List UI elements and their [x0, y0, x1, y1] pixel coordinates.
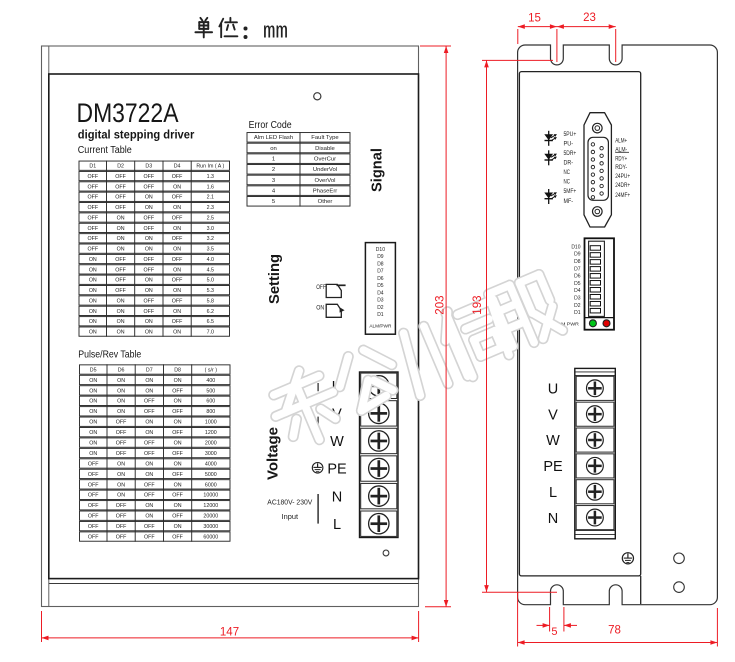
svg-text:OFF: OFF — [144, 493, 155, 499]
svg-text:OFF: OFF — [172, 451, 183, 457]
svg-text:OFF: OFF — [172, 174, 183, 180]
svg-text:OFF: OFF — [115, 195, 126, 201]
svg-text:D8: D8 — [377, 261, 384, 267]
svg-text:D4: D4 — [377, 290, 384, 296]
svg-text:W: W — [546, 433, 560, 449]
svg-text:2000: 2000 — [205, 441, 217, 447]
svg-text:NC: NC — [564, 180, 571, 186]
svg-text:D2: D2 — [377, 305, 384, 311]
svg-text:D6: D6 — [118, 367, 125, 373]
svg-text:ON: ON — [117, 309, 125, 315]
svg-text:30000: 30000 — [203, 524, 218, 530]
svg-text:OFF: OFF — [172, 298, 183, 304]
svg-text:ON: ON — [173, 205, 181, 211]
svg-text:DM3722A: DM3722A — [77, 98, 179, 128]
svg-text:ON: ON — [174, 399, 182, 405]
svg-text:ON: ON — [174, 378, 182, 384]
svg-text:OFF: OFF — [172, 236, 183, 242]
svg-text:MF-: MF- — [564, 199, 574, 205]
svg-text:OFF: OFF — [144, 298, 155, 304]
svg-text:OFF: OFF — [116, 420, 127, 426]
svg-text:D8: D8 — [174, 367, 181, 373]
svg-text:ON: ON — [174, 461, 182, 467]
svg-text:Other: Other — [318, 199, 333, 205]
svg-text:D6: D6 — [377, 276, 384, 282]
svg-text:OFF: OFF — [172, 472, 183, 478]
svg-text:ON: ON — [117, 472, 125, 478]
svg-text:ON: ON — [145, 503, 153, 509]
svg-text:Error Code: Error Code — [249, 120, 292, 131]
svg-text:ON: ON — [145, 236, 153, 242]
svg-text:1.3: 1.3 — [207, 174, 214, 180]
svg-text:OFF: OFF — [116, 503, 127, 509]
svg-text:L: L — [333, 517, 341, 533]
svg-text:3.0: 3.0 — [207, 226, 214, 232]
svg-text:OFF: OFF — [144, 524, 155, 530]
svg-text:Disable: Disable — [315, 146, 335, 152]
svg-text:78: 78 — [608, 625, 621, 637]
svg-text:mm: mm — [263, 20, 288, 45]
svg-text:500: 500 — [206, 388, 215, 394]
svg-text:OverCur: OverCur — [314, 157, 336, 163]
svg-text:OFF: OFF — [144, 215, 155, 221]
svg-text:ON: ON — [117, 247, 125, 253]
svg-text:OFF: OFF — [116, 535, 127, 541]
svg-text:D2: D2 — [117, 164, 124, 170]
svg-text:D9: D9 — [574, 252, 581, 258]
svg-text:5: 5 — [551, 626, 557, 638]
svg-text:4000: 4000 — [205, 461, 217, 467]
svg-text:ON: ON — [117, 399, 125, 405]
svg-text:OFF: OFF — [144, 441, 155, 447]
svg-text:RDY-: RDY- — [615, 165, 627, 171]
svg-text:6000: 6000 — [205, 482, 217, 488]
svg-text:ON: ON — [117, 319, 125, 325]
svg-text:ON: ON — [89, 451, 97, 457]
svg-text:D7: D7 — [146, 367, 153, 373]
svg-text:ON: ON — [117, 236, 125, 242]
svg-text:OFF: OFF — [88, 535, 99, 541]
svg-text:147: 147 — [220, 626, 239, 638]
svg-text:PhaseErr: PhaseErr — [313, 189, 338, 195]
svg-text:12000: 12000 — [203, 503, 218, 509]
svg-text:OFF: OFF — [144, 451, 155, 457]
svg-text:ON: ON — [117, 330, 125, 336]
svg-text:ON: ON — [316, 305, 324, 311]
svg-text:OFF: OFF — [88, 524, 99, 530]
svg-text:OFF: OFF — [144, 184, 155, 190]
svg-text:OFF: OFF — [88, 482, 99, 488]
svg-text:ON: ON — [174, 420, 182, 426]
svg-text:OFF: OFF — [144, 409, 155, 415]
svg-text:OFF: OFF — [88, 503, 99, 509]
svg-text:U: U — [548, 382, 558, 398]
svg-text:D3: D3 — [377, 298, 384, 304]
svg-text:ON: ON — [145, 378, 153, 384]
svg-text:L: L — [549, 485, 557, 501]
svg-text:10000: 10000 — [203, 493, 218, 499]
svg-text:D3: D3 — [145, 164, 152, 170]
svg-text:W: W — [330, 434, 344, 450]
svg-text:Fault Type: Fault Type — [311, 135, 339, 141]
svg-text:OFF: OFF — [172, 388, 183, 394]
svg-text:5000: 5000 — [205, 472, 217, 478]
svg-text:OverVol: OverVol — [315, 178, 336, 184]
svg-text:OFF: OFF — [172, 535, 183, 541]
svg-text:OFF: OFF — [88, 174, 99, 180]
svg-text:OFF: OFF — [172, 278, 183, 284]
svg-text:ON: ON — [173, 309, 181, 315]
svg-text:OFF: OFF — [115, 257, 126, 263]
svg-text:ON: ON — [174, 482, 182, 488]
svg-text:1200: 1200 — [205, 430, 217, 436]
svg-text:ON: ON — [174, 503, 182, 509]
svg-text:OFF: OFF — [115, 267, 126, 273]
svg-text:3.2: 3.2 — [207, 236, 214, 242]
svg-text:D5: D5 — [574, 281, 581, 287]
svg-text:ON: ON — [145, 420, 153, 426]
svg-text:OFF: OFF — [116, 524, 127, 530]
svg-text:PE: PE — [543, 459, 563, 475]
svg-text:2.1: 2.1 — [207, 195, 214, 201]
svg-text:OFF: OFF — [144, 309, 155, 315]
svg-text:1000: 1000 — [205, 420, 217, 426]
svg-text:ON: ON — [145, 278, 153, 284]
svg-text:OFF: OFF — [88, 514, 99, 520]
svg-text:3.5: 3.5 — [207, 247, 214, 253]
svg-text:800: 800 — [206, 409, 215, 415]
svg-text:PE: PE — [327, 462, 347, 478]
svg-text:OFF: OFF — [144, 257, 155, 263]
svg-text:on: on — [270, 146, 277, 152]
svg-text:OFF: OFF — [115, 278, 126, 284]
svg-text:D2: D2 — [574, 303, 581, 309]
svg-text:OFF: OFF — [172, 215, 183, 221]
svg-text:2.3: 2.3 — [207, 205, 214, 211]
svg-text:D4: D4 — [174, 164, 181, 170]
svg-text:ON: ON — [89, 378, 97, 384]
svg-text:OFF: OFF — [88, 493, 99, 499]
svg-text:D7: D7 — [377, 269, 384, 275]
svg-text:V: V — [548, 407, 558, 423]
svg-text:Signal: Signal — [369, 148, 386, 192]
svg-text:ON: ON — [89, 330, 97, 336]
svg-text:DR-: DR- — [564, 161, 574, 167]
svg-text:OFF: OFF — [144, 174, 155, 180]
svg-text:OFF: OFF — [116, 430, 127, 436]
svg-text:ON: ON — [145, 388, 153, 394]
svg-text:OFF: OFF — [172, 514, 183, 520]
svg-text:AC180V- 230V: AC180V- 230V — [267, 500, 312, 507]
svg-text:ALM/PWR: ALM/PWR — [369, 323, 391, 328]
svg-text:OFF: OFF — [88, 461, 99, 467]
svg-text:1.6: 1.6 — [207, 184, 214, 190]
svg-text:D10: D10 — [571, 244, 580, 250]
svg-text:D1: D1 — [574, 310, 581, 316]
svg-text:OFF: OFF — [144, 482, 155, 488]
svg-text:NC: NC — [564, 170, 571, 176]
svg-text:OFF: OFF — [88, 247, 99, 253]
svg-text:6.2: 6.2 — [207, 309, 214, 315]
svg-text:OFF: OFF — [172, 257, 183, 263]
svg-text:OFF: OFF — [116, 441, 127, 447]
svg-text:ON: ON — [145, 247, 153, 253]
svg-text:203: 203 — [435, 296, 447, 315]
svg-text:ON: ON — [173, 184, 181, 190]
svg-text:OFF: OFF — [88, 205, 99, 211]
svg-text:ON: ON — [89, 388, 97, 394]
svg-text:ON: ON — [89, 267, 97, 273]
svg-text:Input: Input — [282, 514, 299, 521]
svg-text:Setting: Setting — [266, 254, 283, 304]
svg-text:OFF: OFF — [115, 184, 126, 190]
svg-text:OFF: OFF — [88, 184, 99, 190]
svg-text:ON: ON — [174, 441, 182, 447]
svg-text:ON: ON — [117, 226, 125, 232]
svg-text:5DR+: 5DR+ — [564, 151, 577, 157]
svg-text:5.0: 5.0 — [207, 278, 214, 284]
svg-text:ON: ON — [89, 257, 97, 263]
svg-text:600: 600 — [206, 399, 215, 405]
svg-text:OFF: OFF — [88, 472, 99, 478]
svg-text:ON: ON — [145, 514, 153, 520]
svg-text:193: 193 — [472, 296, 484, 315]
svg-text:D6: D6 — [574, 274, 581, 280]
svg-text:D8: D8 — [574, 259, 581, 265]
svg-text:OFF: OFF — [88, 215, 99, 221]
svg-text:D9: D9 — [377, 254, 384, 260]
svg-text:Voltage: Voltage — [265, 427, 282, 480]
svg-text:OFF: OFF — [172, 195, 183, 201]
svg-text:D10: D10 — [376, 247, 385, 253]
svg-text:ON: ON — [173, 267, 181, 273]
svg-text:ON: ON — [173, 226, 181, 232]
svg-text:3000: 3000 — [205, 451, 217, 457]
svg-text:4.5: 4.5 — [207, 267, 214, 273]
svg-text:OFF: OFF — [144, 535, 155, 541]
svg-text:ON: ON — [117, 482, 125, 488]
svg-text:6.5: 6.5 — [207, 319, 214, 325]
svg-text:OFF: OFF — [115, 288, 126, 294]
svg-text:RDY+: RDY+ — [615, 156, 627, 162]
svg-text:D4: D4 — [574, 288, 581, 294]
svg-text:OFF: OFF — [116, 514, 127, 520]
svg-text:5PU+: 5PU+ — [564, 132, 577, 138]
svg-text:Run Im ( A ): Run Im ( A ) — [196, 164, 224, 170]
svg-text:ON: ON — [89, 278, 97, 284]
svg-text:Pulse/Rev Table: Pulse/Rev Table — [78, 350, 141, 361]
svg-text:D5: D5 — [377, 283, 384, 289]
svg-text:ON: ON — [89, 399, 97, 405]
svg-text:2: 2 — [272, 167, 275, 173]
svg-text:D1: D1 — [89, 164, 96, 170]
svg-text:OFF: OFF — [88, 236, 99, 242]
svg-text:ON: ON — [89, 319, 97, 325]
svg-text:OFF: OFF — [144, 226, 155, 232]
svg-text:digital stepping driver: digital stepping driver — [78, 129, 195, 141]
svg-text:1: 1 — [272, 157, 275, 163]
svg-text:OFF: OFF — [316, 285, 326, 291]
svg-text:ALM+: ALM+ — [615, 139, 627, 145]
svg-text:24PU+: 24PU+ — [615, 174, 630, 180]
svg-text:ON: ON — [145, 195, 153, 201]
svg-text:400: 400 — [206, 378, 215, 384]
svg-text:D3: D3 — [574, 296, 581, 302]
svg-text:24DR+: 24DR+ — [615, 183, 630, 189]
svg-text:ON: ON — [145, 330, 153, 336]
svg-text:OFF: OFF — [172, 493, 183, 499]
svg-text:60000: 60000 — [203, 535, 218, 541]
svg-text:( s/r ): ( s/r ) — [205, 367, 218, 373]
svg-text:ON: ON — [89, 298, 97, 304]
svg-text:4.0: 4.0 — [207, 257, 214, 263]
svg-text:ON: ON — [145, 205, 153, 211]
svg-text:OFF: OFF — [144, 267, 155, 273]
svg-text:N: N — [548, 511, 558, 527]
svg-text:ON: ON — [117, 409, 125, 415]
svg-text:ON: ON — [89, 309, 97, 315]
svg-text:2.5: 2.5 — [207, 215, 214, 221]
svg-text:20000: 20000 — [203, 514, 218, 520]
svg-text:UnderVol: UnderVol — [313, 167, 337, 173]
svg-text:5MF+: 5MF+ — [564, 189, 577, 195]
svg-text:OFF: OFF — [115, 174, 126, 180]
svg-text:ON: ON — [117, 388, 125, 394]
svg-text:D7: D7 — [574, 266, 581, 272]
svg-text:23: 23 — [583, 12, 596, 24]
svg-text:ON: ON — [145, 430, 153, 436]
svg-text:D1: D1 — [377, 312, 384, 318]
svg-text:OFF: OFF — [88, 226, 99, 232]
svg-text:ON: ON — [117, 298, 125, 304]
svg-text:24MF+: 24MF+ — [615, 193, 630, 199]
svg-text:D5: D5 — [90, 367, 97, 373]
svg-text:OFF: OFF — [88, 195, 99, 201]
svg-text:7.0: 7.0 — [207, 330, 214, 336]
svg-text:ON: ON — [145, 319, 153, 325]
svg-text:5.3: 5.3 — [207, 288, 214, 294]
svg-text:PU-: PU- — [564, 141, 574, 147]
svg-text:ON: ON — [145, 461, 153, 467]
svg-text:ON: ON — [89, 420, 97, 426]
svg-text:N: N — [332, 489, 342, 505]
svg-text:ON: ON — [145, 472, 153, 478]
svg-text:OFF: OFF — [172, 319, 183, 325]
svg-text:ON: ON — [173, 330, 181, 336]
svg-text:ON: ON — [89, 430, 97, 436]
svg-text:ON: ON — [173, 288, 181, 294]
svg-text:ON: ON — [145, 288, 153, 294]
svg-text:ON: ON — [173, 247, 181, 253]
svg-text:ON: ON — [117, 493, 125, 499]
svg-text:ON: ON — [174, 524, 182, 530]
svg-text:OFF: OFF — [172, 430, 183, 436]
svg-text:OFF: OFF — [115, 205, 126, 211]
svg-text:Alm LED Flash: Alm LED Flash — [254, 135, 293, 141]
svg-text:ON: ON — [117, 378, 125, 384]
svg-text:Current Table: Current Table — [78, 145, 132, 156]
svg-text:ALM-: ALM- — [615, 148, 627, 154]
svg-text:ON: ON — [89, 288, 97, 294]
svg-text:5.8: 5.8 — [207, 298, 214, 304]
svg-text:ON: ON — [89, 441, 97, 447]
svg-text:ON: ON — [117, 215, 125, 221]
svg-text:ON: ON — [89, 409, 97, 415]
svg-text:OFF: OFF — [144, 399, 155, 405]
svg-text:OFF: OFF — [116, 451, 127, 457]
svg-text:15: 15 — [528, 13, 541, 25]
svg-text:OFF: OFF — [172, 409, 183, 415]
svg-text:ON: ON — [117, 461, 125, 467]
